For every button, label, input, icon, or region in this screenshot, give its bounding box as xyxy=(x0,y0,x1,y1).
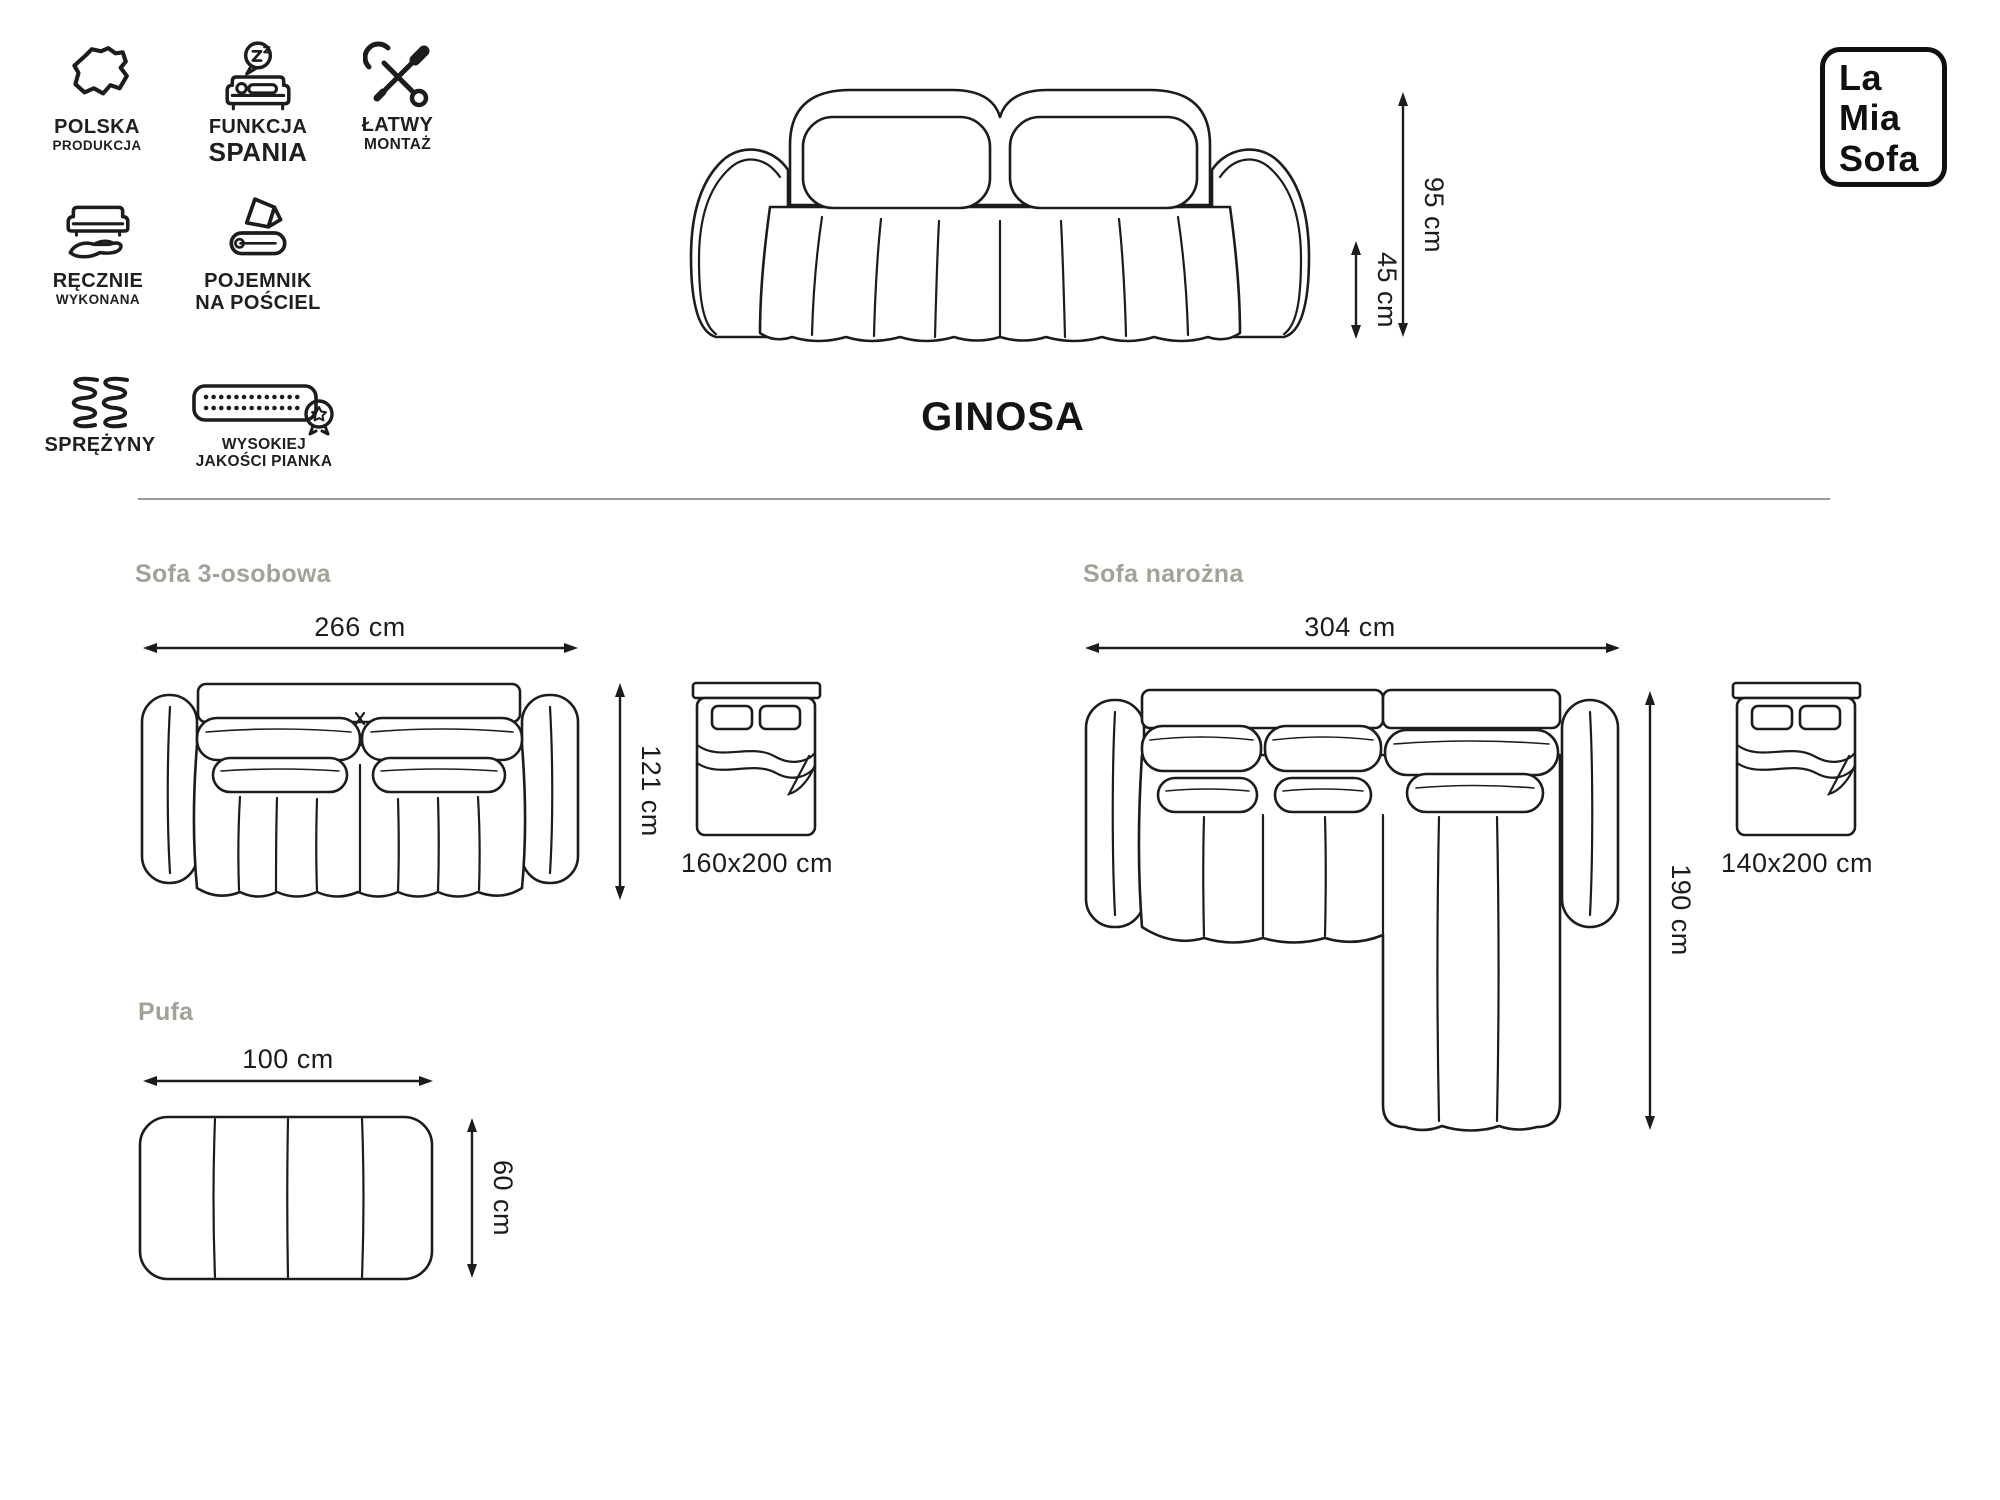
badge-sublabel: NA POŚCIEL xyxy=(172,292,344,314)
badge-sublabel: SPANIA xyxy=(178,138,338,167)
badge-label: POLSKA xyxy=(27,116,167,138)
handmade-icon xyxy=(60,194,136,270)
sofa3-depth-label: 121 cm xyxy=(636,745,665,837)
badge-label: FUNKCJA xyxy=(178,116,338,138)
section-title-pouf: Pufa xyxy=(138,998,193,1027)
badge-label: POJEMNIK xyxy=(172,270,344,292)
corner-width-label: 304 cm xyxy=(1304,612,1396,642)
brand-logo-line: La xyxy=(1839,58,1942,98)
badge-sprezyny: SPRĘŻYNY xyxy=(30,372,170,456)
pouf-width-label: 100 cm xyxy=(242,1044,334,1074)
sofa3-bed-size-icon: 160x200 cm xyxy=(675,645,845,885)
corner-bed-size-label: 140x200 cm xyxy=(1721,848,1873,878)
sofa3-bed-size-label: 160x200 cm xyxy=(681,848,833,878)
sofa-front-view-drawing: 45 cm 95 cm xyxy=(670,45,1460,350)
sofa3-top-view-drawing: 266 cm 121 cm xyxy=(120,595,665,915)
brand-logo: La Mia Sofa xyxy=(1820,47,1947,187)
badge-label: ŁATWY xyxy=(330,114,465,136)
section-title-corner: Sofa narożna xyxy=(1083,560,1244,589)
corner-depth-label: 190 cm xyxy=(1666,864,1696,956)
easy-assembly-icon xyxy=(363,40,433,114)
bedding-storage-icon xyxy=(220,194,296,270)
badge-label: RĘCZNIE xyxy=(28,270,168,292)
hero-seat-height-label: 45 cm xyxy=(1372,252,1402,328)
corner-bed-size-icon: 140x200 cm xyxy=(1715,645,1885,885)
poland-map-icon xyxy=(61,40,133,116)
badge-latwy-montaz: ŁATWY MONTAŻ xyxy=(330,40,465,154)
badge-sublabel: JAKOŚCI PIANKA xyxy=(162,453,366,470)
sofa3-width-label: 266 cm xyxy=(314,612,406,642)
badge-recznie-wykonana: RĘCZNIE WYKONANA xyxy=(28,194,168,308)
brand-logo-line: Mia xyxy=(1839,98,1942,138)
section-title-sofa3: Sofa 3-osobowa xyxy=(135,560,331,589)
badge-sublabel: WYKONANA xyxy=(28,292,168,307)
brand-logo-line: Sofa xyxy=(1839,139,1942,179)
badge-wysokiej-jakosci-pianka: WYSOKIEJ JAKOŚCI PIANKA xyxy=(162,374,366,471)
springs-icon xyxy=(64,372,136,434)
pouf-depth-label: 60 cm xyxy=(488,1160,518,1236)
badge-sublabel: MONTAŻ xyxy=(330,136,465,153)
badge-funkcja-spania: FUNKCJA SPANIA xyxy=(178,40,338,168)
spec-sheet: POLSKA PRODUKCJA FUNKCJA SPANIA ŁATWY xyxy=(0,0,2000,1500)
hero-height-label: 95 cm xyxy=(1419,177,1449,253)
badge-label: SPRĘŻYNY xyxy=(30,434,170,456)
badge-label: WYSOKIEJ xyxy=(162,436,366,453)
section-divider xyxy=(138,498,1830,500)
badge-pojemnik-na-posciel: POJEMNIK NA POŚCIEL xyxy=(172,194,344,315)
foam-quality-icon xyxy=(189,374,339,436)
pouf-top-view-drawing: 100 cm 60 cm xyxy=(120,1035,520,1295)
badge-sublabel: PRODUKCJA xyxy=(27,138,167,153)
product-name: GINOSA xyxy=(853,395,1153,440)
badge-polska-produkcja: POLSKA PRODUKCJA xyxy=(27,40,167,154)
corner-sofa-top-view-drawing: 304 cm xyxy=(1070,595,1710,1155)
sleep-function-icon xyxy=(220,40,296,116)
